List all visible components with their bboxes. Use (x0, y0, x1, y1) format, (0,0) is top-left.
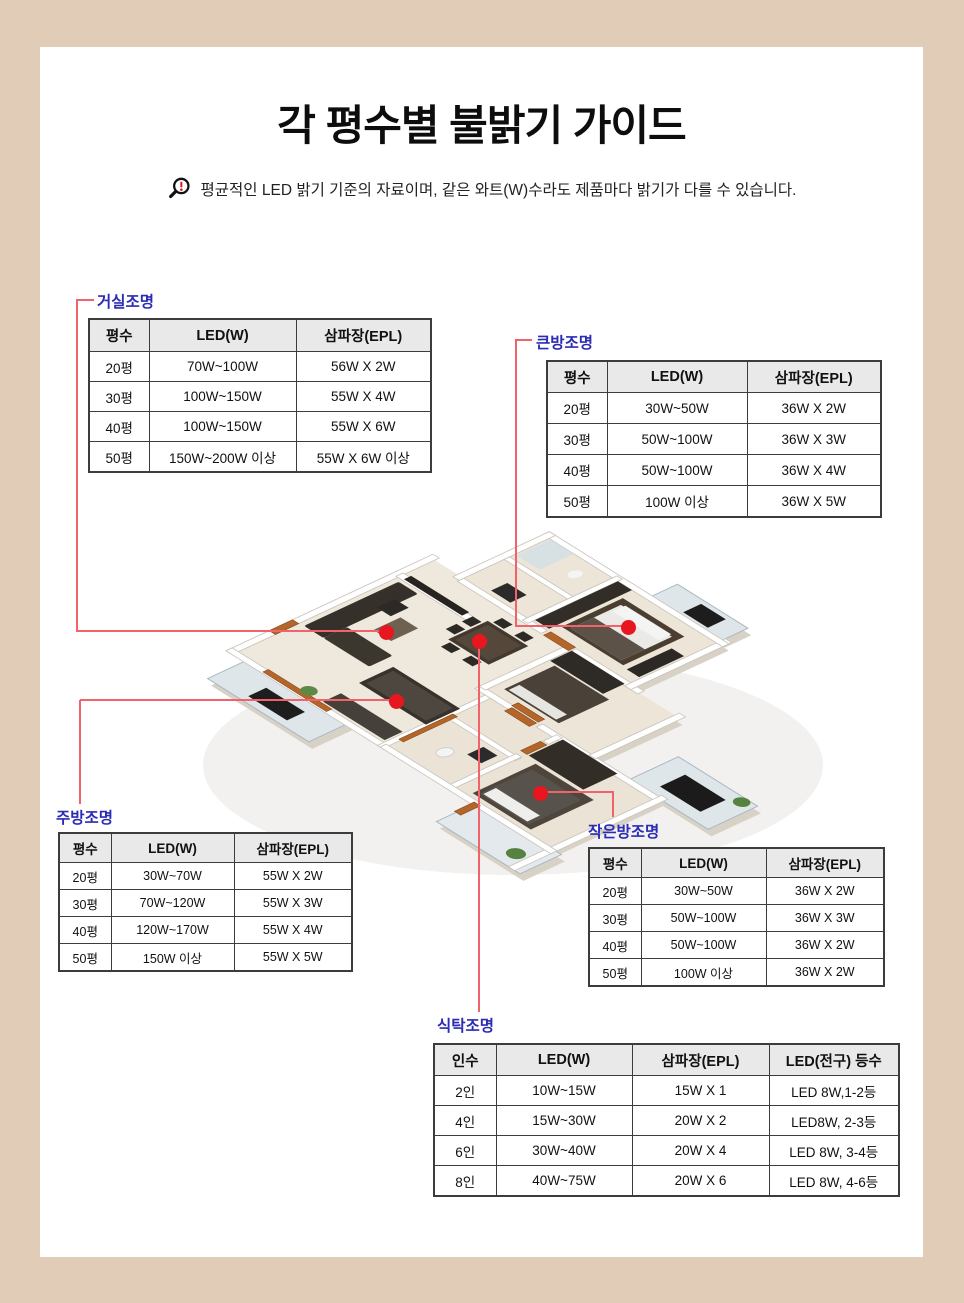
value-cell: 50W~100W (607, 424, 747, 455)
column-header: LED(W) (149, 319, 296, 352)
value-cell: 100W~150W (149, 412, 296, 442)
row-header-cell: 20평 (59, 863, 111, 890)
value-cell: 120W~170W (111, 917, 234, 944)
value-cell: 50W~100W (641, 905, 766, 932)
value-cell: 150W~200W 이상 (149, 442, 296, 473)
value-cell: 55W X 4W (234, 917, 352, 944)
row-header-cell: 50평 (59, 944, 111, 972)
value-cell: 15W X 1 (632, 1076, 769, 1106)
living-room-section-label: 거실조명 (97, 290, 154, 312)
connector-dining-vertical (478, 641, 480, 1012)
table-row: 50평100W 이상36W X 5W (547, 486, 881, 518)
column-header: 평수 (89, 319, 149, 352)
value-cell: LED 8W,1-2등 (769, 1076, 899, 1106)
table-row: 50평150W 이상55W X 5W (59, 944, 352, 972)
row-header-cell: 30평 (89, 382, 149, 412)
value-cell: 56W X 2W (296, 352, 431, 382)
table-row: 40평50W~100W36W X 2W (589, 932, 884, 959)
value-cell: 30W~50W (641, 878, 766, 905)
value-cell: 55W X 4W (296, 382, 431, 412)
row-header-cell: 50평 (547, 486, 607, 518)
column-header: 삼파장(EPL) (632, 1044, 769, 1076)
row-header-cell: 40평 (59, 917, 111, 944)
value-cell: 30W~40W (496, 1136, 632, 1166)
column-header: 평수 (59, 833, 111, 863)
small-room-lighting-table: 평수LED(W)삼파장(EPL)20평30W~50W36W X 2W30평50W… (588, 847, 885, 987)
connector-living-tick (77, 299, 94, 301)
connector-smallroom-horizontal (540, 791, 613, 793)
row-header-cell: 6인 (434, 1136, 496, 1166)
table-row: 50평150W~200W 이상55W X 6W 이상 (89, 442, 431, 473)
light-point-kitchen (389, 694, 404, 709)
column-header: 평수 (547, 361, 607, 393)
living-room-lighting-table: 평수LED(W)삼파장(EPL)20평70W~100W56W X 2W30평10… (88, 318, 432, 473)
dining-section-label: 식탁조명 (437, 1014, 494, 1036)
column-header: LED(W) (607, 361, 747, 393)
row-header-cell: 40평 (89, 412, 149, 442)
value-cell: 55W X 6W (296, 412, 431, 442)
value-cell: 36W X 2W (766, 932, 884, 959)
table-row: 4인15W~30W20W X 2LED8W, 2-3등 (434, 1106, 899, 1136)
value-cell: 70W~120W (111, 890, 234, 917)
row-header-cell: 40평 (547, 455, 607, 486)
column-header: LED(W) (641, 848, 766, 878)
light-point-small-room (533, 786, 548, 801)
column-header: 삼파장(EPL) (766, 848, 884, 878)
value-cell: 40W~75W (496, 1166, 632, 1197)
row-header-cell: 30평 (589, 905, 641, 932)
table-row: 50평100W 이상36W X 2W (589, 959, 884, 987)
row-header-cell: 20평 (89, 352, 149, 382)
magnifier-warning-icon (167, 176, 193, 202)
connector-living-vertical (76, 299, 78, 632)
value-cell: 36W X 2W (766, 959, 884, 987)
value-cell: LED 8W, 4-6등 (769, 1166, 899, 1197)
table-row: 2인10W~15W15W X 1LED 8W,1-2등 (434, 1076, 899, 1106)
value-cell: 10W~15W (496, 1076, 632, 1106)
connector-kitchen-horizontal (80, 699, 396, 701)
light-point-living-room (379, 625, 394, 640)
value-cell: 15W~30W (496, 1106, 632, 1136)
row-header-cell: 4인 (434, 1106, 496, 1136)
row-header-cell: 50평 (89, 442, 149, 473)
row-header-cell: 40평 (589, 932, 641, 959)
column-header: LED(W) (111, 833, 234, 863)
value-cell: 36W X 2W (766, 878, 884, 905)
value-cell: 20W X 6 (632, 1166, 769, 1197)
table-row: 40평100W~150W55W X 6W (89, 412, 431, 442)
dining-lighting-table: 인수LED(W)삼파장(EPL)LED(전구) 등수2인10W~15W15W X… (433, 1043, 900, 1197)
column-header: LED(W) (496, 1044, 632, 1076)
value-cell: 100W~150W (149, 382, 296, 412)
value-cell: 30W~50W (607, 393, 747, 424)
column-header: 삼파장(EPL) (296, 319, 431, 352)
column-header: 삼파장(EPL) (234, 833, 352, 863)
value-cell: 36W X 3W (747, 424, 881, 455)
big-room-lighting-table: 평수LED(W)삼파장(EPL)20평30W~50W36W X 2W30평50W… (546, 360, 882, 518)
small-room-section-label: 작은방조명 (588, 820, 659, 842)
table-row: 20평30W~50W36W X 2W (589, 878, 884, 905)
row-header-cell: 20평 (547, 393, 607, 424)
table-row: 30평50W~100W36W X 3W (547, 424, 881, 455)
page-title: 각 평수별 불밝기 가이드 (40, 92, 923, 153)
row-header-cell: 30평 (547, 424, 607, 455)
value-cell: 55W X 6W 이상 (296, 442, 431, 473)
value-cell: LED 8W, 3-4등 (769, 1136, 899, 1166)
table-row: 30평70W~120W55W X 3W (59, 890, 352, 917)
kitchen-lighting-table: 평수LED(W)삼파장(EPL)20평30W~70W55W X 2W30평70W… (58, 832, 353, 972)
table-row: 8인40W~75W20W X 6LED 8W, 4-6등 (434, 1166, 899, 1197)
light-point-big-room (621, 620, 636, 635)
value-cell: 20W X 4 (632, 1136, 769, 1166)
table-row: 40평50W~100W36W X 4W (547, 455, 881, 486)
disclaimer: 평균적인 LED 밝기 기준의 자료이며, 같은 와트(W)수라도 제품마다 밝… (40, 176, 923, 202)
connector-living-horizontal (77, 630, 386, 632)
value-cell: 150W 이상 (111, 944, 234, 972)
connector-smallroom-vertical (612, 791, 614, 817)
column-header: LED(전구) 등수 (769, 1044, 899, 1076)
connector-bigroom-tick (516, 339, 532, 341)
column-header: 평수 (589, 848, 641, 878)
kitchen-section-label: 주방조명 (56, 806, 113, 828)
value-cell: 100W 이상 (641, 959, 766, 987)
value-cell: 30W~70W (111, 863, 234, 890)
row-header-cell: 2인 (434, 1076, 496, 1106)
row-header-cell: 8인 (434, 1166, 496, 1197)
connector-kitchen-vertical (79, 700, 81, 804)
row-header-cell: 30평 (59, 890, 111, 917)
table-row: 6인30W~40W20W X 4LED 8W, 3-4등 (434, 1136, 899, 1166)
big-room-section-label: 큰방조명 (536, 331, 593, 353)
table-row: 20평70W~100W56W X 2W (89, 352, 431, 382)
row-header-cell: 20평 (589, 878, 641, 905)
column-header: 인수 (434, 1044, 496, 1076)
table-row: 20평30W~50W36W X 2W (547, 393, 881, 424)
value-cell: 36W X 4W (747, 455, 881, 486)
connector-bigroom-horizontal (516, 625, 628, 627)
value-cell: 36W X 3W (766, 905, 884, 932)
value-cell: 70W~100W (149, 352, 296, 382)
value-cell: 55W X 5W (234, 944, 352, 972)
column-header: 삼파장(EPL) (747, 361, 881, 393)
row-header-cell: 50평 (589, 959, 641, 987)
value-cell: 55W X 3W (234, 890, 352, 917)
value-cell: 50W~100W (641, 932, 766, 959)
table-row: 30평100W~150W55W X 4W (89, 382, 431, 412)
value-cell: 20W X 2 (632, 1106, 769, 1136)
disclaimer-text: 평균적인 LED 밝기 기준의 자료이며, 같은 와트(W)수라도 제품마다 밝… (201, 178, 797, 200)
value-cell: 50W~100W (607, 455, 747, 486)
value-cell: 36W X 5W (747, 486, 881, 518)
value-cell: 55W X 2W (234, 863, 352, 890)
value-cell: 36W X 2W (747, 393, 881, 424)
table-row: 40평120W~170W55W X 4W (59, 917, 352, 944)
value-cell: 100W 이상 (607, 486, 747, 518)
table-row: 20평30W~70W55W X 2W (59, 863, 352, 890)
value-cell: LED8W, 2-3등 (769, 1106, 899, 1136)
table-row: 30평50W~100W36W X 3W (589, 905, 884, 932)
connector-bigroom-vertical (515, 339, 517, 627)
light-point-dining (472, 634, 487, 649)
